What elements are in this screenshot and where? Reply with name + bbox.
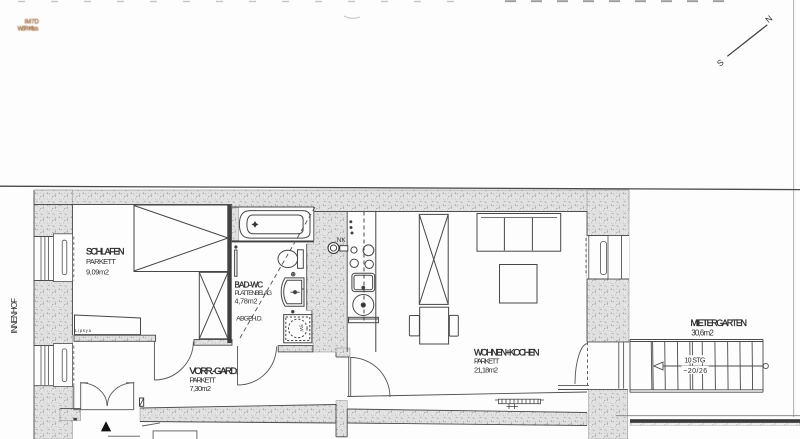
svg-text:BAD-WC: BAD-WC — [235, 281, 264, 290]
svg-text:PARKETT: PARKETT — [190, 375, 217, 384]
svg-text:INNENHOF: INNENHOF — [10, 298, 19, 334]
svg-text:30,6m2: 30,6m2 — [691, 329, 714, 338]
svg-text:IM7D: IM7D — [25, 20, 40, 26]
svg-text:7,30m2: 7,30m2 — [190, 384, 212, 393]
svg-text:MIETERGARTEN: MIETERGARTEN — [691, 318, 748, 328]
svg-text:NK: NK — [337, 238, 346, 244]
svg-text:SCHLAFEN: SCHLAFEN — [86, 247, 125, 257]
svg-text:W5FnKfscs: W5FnKfscs — [18, 27, 39, 33]
svg-text:4,78m2: 4,78m2 — [235, 296, 258, 305]
svg-text:10 STG: 10 STG — [684, 357, 705, 364]
svg-text:21,18m2: 21,18m2 — [474, 366, 498, 375]
svg-text:SW: SW — [299, 324, 305, 333]
svg-text:PARKETT: PARKETT — [474, 357, 500, 366]
svg-text:PARKETT: PARKETT — [86, 257, 116, 266]
svg-text:~20/26: ~20/26 — [683, 368, 707, 375]
svg-text:Lipsya: Lipsya — [75, 328, 92, 333]
svg-text:9,09m2: 9,09m2 — [86, 267, 109, 276]
svg-text:ABGEH.D.: ABGEH.D. — [236, 316, 263, 323]
